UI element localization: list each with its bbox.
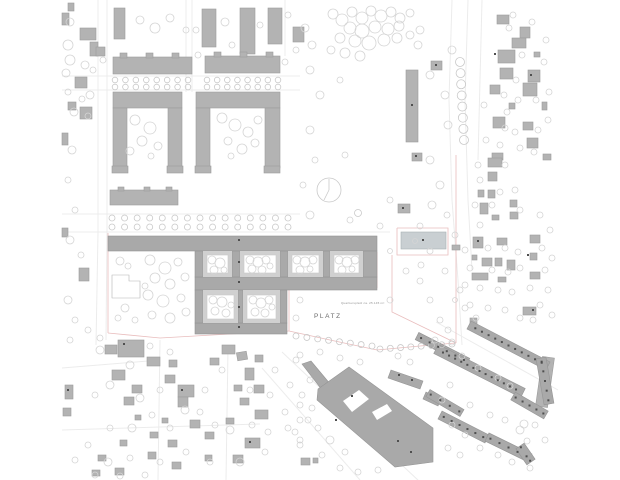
building (196, 92, 280, 108)
tree (165, 279, 175, 289)
tree (545, 287, 551, 293)
tree (85, 442, 91, 448)
tree (487, 412, 493, 418)
building (222, 345, 235, 354)
tree (251, 139, 259, 147)
tree (132, 317, 138, 323)
tree (355, 24, 369, 38)
street-tree (247, 224, 253, 230)
entrance-dot (474, 327, 476, 329)
building (234, 385, 242, 391)
tree (375, 10, 387, 22)
street-tree (172, 224, 178, 230)
building (490, 85, 500, 94)
tree (81, 61, 89, 69)
platz-label: PLATZ (314, 313, 342, 320)
street-tree (134, 224, 140, 230)
building (472, 273, 488, 280)
tree (297, 417, 303, 423)
building (313, 458, 318, 463)
tree (448, 46, 456, 54)
street-tree (377, 346, 383, 352)
tree (477, 445, 483, 451)
tree (342, 152, 348, 158)
entrance-dot (238, 306, 240, 308)
building (113, 108, 127, 168)
entrance-dot (482, 436, 484, 438)
tree (502, 245, 508, 251)
entrance-dot (521, 351, 523, 353)
tree (509, 459, 515, 465)
street-tree (260, 215, 266, 221)
tree (512, 129, 518, 135)
street-tree (123, 84, 129, 90)
tree (441, 91, 449, 99)
tree (142, 283, 148, 289)
building (495, 258, 502, 266)
tree (125, 263, 131, 269)
street-tree (134, 215, 140, 221)
tree (475, 162, 481, 168)
building (124, 397, 134, 405)
tree (337, 465, 343, 471)
tree (297, 402, 303, 408)
entrance-dot (485, 373, 487, 375)
entrance-dot (497, 379, 499, 381)
tree (326, 436, 334, 444)
tree (115, 315, 121, 321)
building-bar (232, 251, 240, 277)
tree (426, 156, 434, 164)
street-tree (204, 77, 210, 83)
entrance-dot (542, 370, 544, 372)
street-tree (154, 84, 160, 90)
entrance-dot (415, 155, 417, 157)
building (80, 28, 96, 40)
entrance-dot (542, 412, 544, 414)
tree (267, 392, 273, 398)
building (178, 385, 194, 397)
tree (197, 409, 203, 415)
building (113, 92, 182, 108)
building (488, 172, 497, 181)
building (62, 133, 68, 145)
building (113, 57, 192, 74)
street-tree (460, 136, 469, 145)
street-tree (210, 224, 216, 230)
building (79, 268, 89, 281)
tree (532, 422, 538, 428)
tree (510, 12, 516, 18)
street-tree (272, 215, 278, 221)
tree (447, 382, 453, 388)
tree (228, 153, 234, 159)
street-tree (272, 224, 278, 230)
tree (193, 27, 199, 33)
building (493, 117, 505, 128)
tree (520, 420, 528, 428)
street-tree (247, 215, 253, 221)
entrance-dot (411, 104, 413, 106)
tree (130, 115, 140, 125)
tree (537, 212, 543, 218)
street-tree (222, 224, 228, 230)
building (202, 9, 216, 47)
tree (265, 429, 271, 435)
tree (388, 249, 393, 254)
street-tree (235, 77, 241, 83)
tree (485, 305, 491, 311)
tree (517, 207, 523, 213)
building (110, 190, 178, 205)
tree (308, 41, 316, 49)
tree (157, 387, 163, 393)
street-tree (143, 77, 149, 83)
entrance-dot (479, 370, 481, 372)
building (512, 38, 526, 48)
street-tree (255, 77, 261, 83)
road (62, 424, 260, 430)
street-tree (123, 77, 129, 83)
street-tree (222, 215, 228, 221)
entrance-dot (238, 326, 240, 328)
entrance-dot (529, 405, 531, 407)
tree (545, 117, 551, 123)
tree (382, 23, 394, 35)
building (68, 3, 74, 11)
tree (427, 297, 433, 303)
street-tree (197, 224, 203, 230)
entrance-dot (541, 361, 543, 363)
tree (167, 425, 173, 431)
street-tree (143, 84, 149, 90)
tree (154, 142, 162, 150)
entrance-dot (466, 364, 468, 366)
building-polygon (388, 370, 423, 389)
building (473, 237, 483, 248)
entrance-dot (351, 395, 353, 397)
entrance-dot (508, 447, 510, 449)
building (240, 52, 247, 57)
building (265, 108, 280, 168)
entrance-dot (398, 374, 400, 376)
tree (306, 66, 314, 74)
street-tree (164, 77, 170, 83)
tree (72, 207, 78, 213)
tree (453, 298, 458, 303)
street-tree (456, 58, 465, 67)
small-circle (355, 210, 362, 217)
tree (467, 402, 473, 408)
tree (481, 102, 487, 108)
tree (357, 359, 363, 365)
tree (442, 268, 448, 274)
building (254, 385, 264, 393)
entrance-dot (535, 408, 537, 410)
entrance-dot (530, 74, 532, 76)
building (172, 53, 179, 58)
building (488, 158, 502, 167)
entrance-dot (527, 355, 529, 357)
building (534, 52, 540, 57)
entrance-dot (437, 346, 439, 348)
building (255, 355, 263, 362)
tree (116, 257, 124, 265)
street-tree (159, 215, 165, 221)
tree (142, 472, 148, 478)
tree (335, 33, 345, 43)
tree (533, 97, 539, 103)
tree (347, 7, 357, 17)
entrance-dot (123, 343, 125, 345)
tree (72, 317, 78, 323)
building (530, 235, 540, 243)
entrance-dot (529, 460, 531, 462)
tree (407, 359, 413, 365)
street-tree (285, 224, 291, 230)
building (62, 228, 68, 237)
tree (106, 381, 114, 389)
building (105, 345, 117, 354)
entrance-dot (481, 331, 483, 333)
tree (157, 295, 169, 307)
building (523, 307, 536, 315)
tree (65, 177, 71, 183)
tree (436, 181, 444, 189)
tree (92, 392, 98, 398)
tree (64, 296, 72, 304)
entrance-dot (446, 350, 448, 352)
tree (524, 438, 530, 444)
street-tree (204, 84, 210, 90)
tree (497, 189, 503, 195)
building (150, 432, 158, 438)
tree (546, 89, 552, 95)
labels-layer: Quartiersplatz ca. 25.145 m² PLATZ (314, 301, 384, 320)
street-tree (175, 77, 181, 83)
tree (96, 346, 104, 354)
building (166, 187, 172, 191)
street-tree (457, 80, 466, 89)
entrance-dot (546, 390, 548, 392)
building (530, 253, 537, 260)
tree (462, 282, 468, 288)
building (543, 154, 551, 160)
entrance-dot (435, 64, 437, 66)
building (205, 56, 280, 73)
tree (293, 357, 299, 363)
tree (375, 467, 381, 473)
tree (317, 349, 323, 355)
tree (147, 343, 153, 349)
building (293, 27, 304, 42)
street-tree (260, 224, 266, 230)
street-tree (147, 215, 153, 221)
tree (547, 227, 553, 233)
tree (166, 14, 174, 22)
tree (395, 353, 401, 359)
tree (386, 7, 396, 17)
tree (362, 36, 376, 50)
tree (542, 267, 548, 273)
tree (337, 77, 343, 83)
tree (378, 34, 390, 46)
tree (316, 91, 324, 99)
entrance-dot (527, 254, 529, 256)
tree (489, 202, 495, 208)
tree (319, 452, 325, 458)
tree (282, 409, 288, 415)
tree (406, 9, 414, 17)
tree (85, 327, 91, 333)
building (205, 455, 212, 461)
tree (202, 387, 208, 393)
existing-building-outline (112, 275, 140, 298)
tree (306, 126, 314, 134)
street-tree (224, 77, 230, 83)
entrance-dot (454, 358, 456, 360)
building (148, 452, 156, 459)
street-tree (214, 77, 220, 83)
tree (495, 287, 501, 293)
street-tree (164, 84, 170, 90)
tree (497, 142, 503, 148)
building (205, 432, 214, 439)
tree (254, 116, 262, 124)
entrance-dot (520, 446, 522, 448)
tree (366, 6, 376, 16)
tree (229, 42, 235, 48)
building-bar (195, 251, 203, 277)
entrance-dot (509, 385, 511, 387)
tree (297, 297, 303, 303)
building (114, 8, 125, 39)
tree (515, 97, 521, 103)
tree (224, 137, 232, 145)
building (268, 8, 282, 44)
tree (221, 18, 229, 26)
street-tree (255, 84, 261, 90)
site-plan-page: Quartiersplatz ca. 25.145 m² PLATZ (0, 0, 620, 480)
entrance-dot (517, 451, 519, 453)
building (482, 258, 492, 266)
building-bar (280, 290, 287, 323)
tree (517, 315, 523, 321)
tree (167, 349, 173, 355)
building (500, 68, 513, 79)
building-bar (323, 251, 330, 277)
tree (257, 22, 263, 28)
tree (347, 217, 353, 223)
building (112, 370, 125, 380)
building (497, 15, 509, 24)
tree (403, 268, 409, 274)
entrance-dot (515, 388, 517, 390)
entrance-dot (430, 394, 432, 396)
building (165, 375, 175, 383)
tree (349, 35, 361, 47)
building (236, 351, 247, 361)
tree (527, 285, 533, 291)
tree (78, 252, 84, 258)
building (147, 357, 160, 366)
street-tree (122, 215, 128, 221)
tree (444, 121, 452, 129)
tree (309, 405, 315, 411)
tree (219, 367, 225, 373)
entrance-dot (449, 405, 451, 407)
building (80, 107, 92, 119)
entrance-dot (494, 338, 496, 340)
building (510, 212, 518, 219)
entrance-dot (472, 367, 474, 369)
street-tree (175, 84, 181, 90)
tree (549, 255, 555, 261)
tree (182, 308, 190, 316)
entrance-dot (429, 341, 431, 343)
street-tree (184, 224, 190, 230)
tree (243, 127, 253, 137)
tree (237, 144, 247, 154)
tree (336, 14, 348, 26)
tree (137, 136, 147, 146)
building (255, 410, 268, 419)
tree (148, 153, 154, 159)
building (480, 203, 488, 214)
tree (344, 22, 356, 34)
building (112, 166, 128, 173)
tree (495, 452, 501, 458)
site-plan-canvas: Quartiersplatz ca. 25.145 m² PLATZ (0, 0, 620, 480)
tree (121, 304, 129, 312)
building-bar (280, 251, 288, 277)
tree (159, 262, 171, 274)
tree (183, 449, 189, 455)
street-tree (459, 124, 468, 133)
tree (369, 21, 381, 33)
tree (527, 465, 533, 471)
building (172, 462, 181, 469)
tree (104, 458, 112, 466)
street-tree (245, 84, 251, 90)
street-tree (112, 84, 118, 90)
building (492, 215, 499, 220)
tree (472, 202, 478, 208)
building (523, 122, 533, 130)
entrance-dot (397, 440, 399, 442)
street-tree (275, 84, 281, 90)
entrance-dot (422, 239, 424, 241)
building (507, 260, 515, 270)
building (498, 277, 506, 282)
entrance-dot (443, 416, 445, 418)
tree (414, 41, 422, 49)
street-tree (347, 340, 353, 346)
tree (150, 273, 160, 283)
street-tree (109, 215, 115, 221)
street-tree (275, 77, 281, 83)
tree (483, 137, 489, 143)
tree (543, 37, 549, 43)
tree (535, 127, 541, 133)
street-tree (133, 77, 139, 83)
tree (90, 67, 96, 73)
tree (387, 197, 393, 203)
tree (485, 245, 491, 251)
building (226, 418, 234, 424)
building (527, 138, 538, 148)
tree (502, 162, 508, 168)
